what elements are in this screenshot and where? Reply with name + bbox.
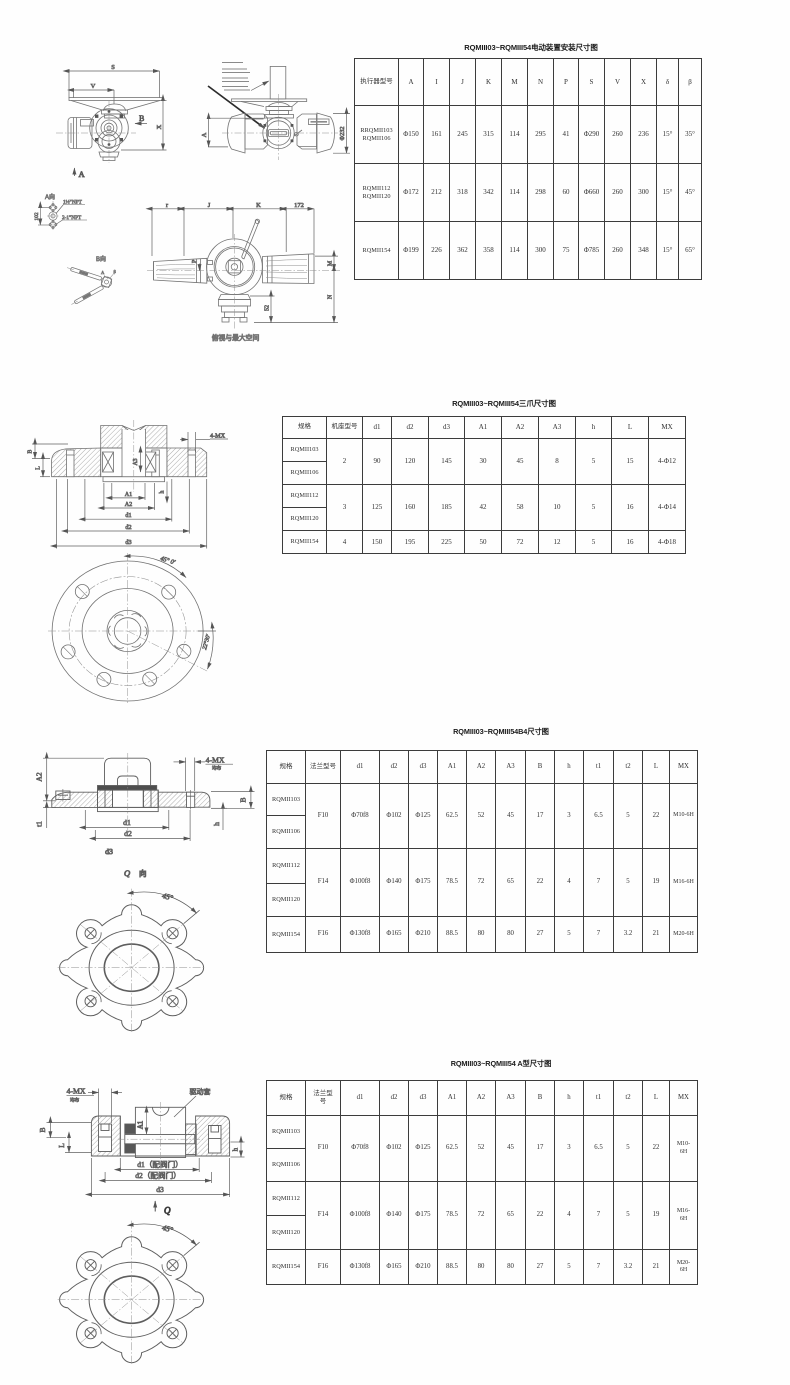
svg-text:d3: d3 [125, 539, 131, 546]
svg-text:4-MX: 4-MX [210, 433, 226, 440]
svg-text:d3: d3 [156, 1185, 164, 1194]
svg-text:4-MX: 4-MX [67, 1087, 86, 1096]
svg-text:X: X [156, 124, 163, 129]
svg-text:B向: B向 [96, 255, 106, 263]
svg-text:J: J [208, 202, 211, 209]
svg-text:d2: d2 [125, 524, 131, 531]
svg-text:β: β [114, 269, 117, 274]
svg-text:L: L [57, 1143, 66, 1148]
svg-text:P: P [192, 259, 198, 263]
svg-text:A: A [201, 132, 208, 137]
svg-text:向: 向 [139, 868, 147, 878]
svg-text:A: A [101, 270, 105, 275]
svg-text:d1: d1 [125, 512, 131, 519]
svg-text:Φ232: Φ232 [339, 126, 346, 140]
svg-text:俯视与最大空间: 俯视与最大空间 [212, 333, 260, 342]
svg-text:B: B [139, 114, 144, 123]
svg-text:172: 172 [294, 202, 304, 209]
svg-text:Q: Q [164, 1206, 171, 1216]
svg-text:L: L [36, 466, 42, 470]
svg-text:102: 102 [34, 212, 40, 221]
svg-text:B: B [239, 797, 248, 802]
svg-text:A向: A向 [45, 193, 55, 201]
svg-text:均布: 均布 [212, 765, 222, 772]
svg-text:h: h [212, 822, 221, 826]
svg-text:r: r [166, 202, 169, 209]
svg-text:V: V [91, 83, 96, 90]
svg-text:K: K [256, 202, 261, 209]
svg-text:d1（配阀门）: d1（配阀门） [137, 1159, 183, 1169]
svg-text:d3: d3 [105, 847, 113, 856]
svg-text:h: h [160, 490, 166, 493]
svg-text:52: 52 [265, 305, 271, 311]
svg-text:N: N [328, 294, 334, 299]
svg-text:驱动套: 驱动套 [190, 1087, 211, 1096]
svg-text:B: B [38, 1127, 47, 1132]
svg-text:A3: A3 [133, 458, 139, 465]
svg-text:均布: 均布 [70, 1097, 80, 1104]
svg-text:t1: t1 [35, 821, 44, 827]
svg-text:d2: d2 [124, 829, 132, 838]
svg-text:M: M [328, 260, 334, 266]
svg-text:B: B [28, 449, 34, 453]
svg-text:Q: Q [124, 868, 130, 878]
svg-text:A: A [79, 169, 86, 179]
svg-text:S: S [111, 64, 115, 71]
svg-text:d2（配阀门）: d2（配阀门） [135, 1170, 181, 1180]
svg-text:4-MX: 4-MX [206, 756, 225, 765]
svg-text:h: h [233, 1147, 240, 1151]
svg-text:A2: A2 [125, 501, 133, 508]
svg-text:d1: d1 [123, 818, 131, 827]
svg-text:A2: A2 [35, 772, 44, 781]
svg-text:A1: A1 [138, 1121, 145, 1129]
svg-text:A1: A1 [125, 491, 133, 498]
